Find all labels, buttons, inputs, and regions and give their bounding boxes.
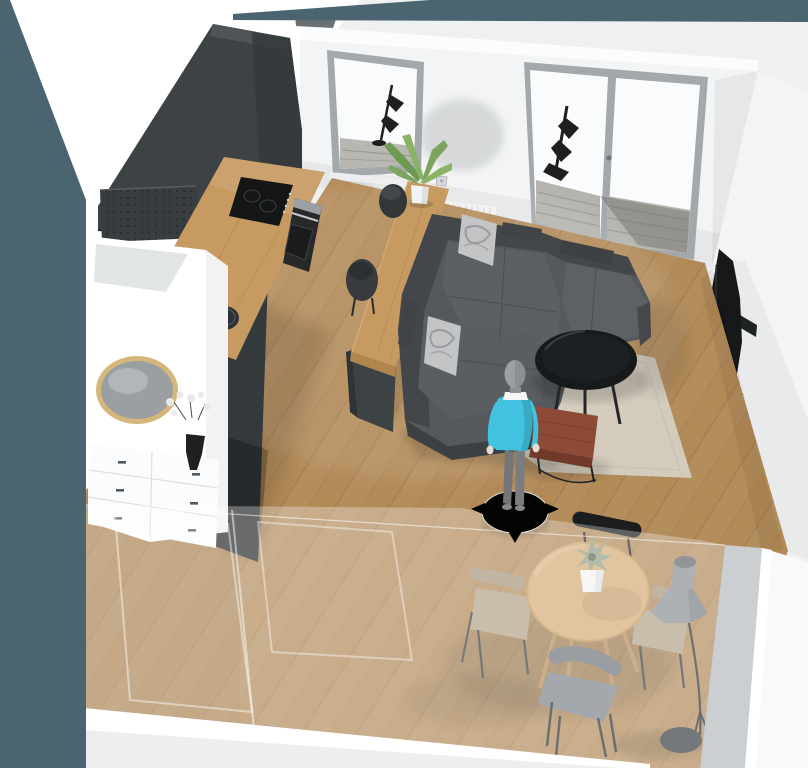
viewport-3d[interactable] — [0, 0, 808, 768]
cooktop-control — [285, 205, 287, 207]
bar-stool-seat — [349, 262, 373, 280]
flower — [171, 410, 177, 416]
drawer-handle — [192, 473, 200, 476]
avatar-foot — [515, 505, 525, 511]
door-handle — [607, 156, 612, 161]
move-disc[interactable] — [482, 491, 548, 533]
avatar-collar — [503, 392, 528, 400]
drawer-handle — [190, 502, 198, 505]
flower — [166, 398, 174, 406]
cooktop-control — [289, 193, 291, 195]
flower — [204, 404, 211, 411]
round-mirror[interactable] — [96, 356, 178, 424]
cooktop-control — [283, 211, 285, 213]
mirror-highlight — [108, 368, 148, 394]
partition-wardrobe[interactable] — [88, 236, 228, 548]
drawer-handle — [118, 461, 126, 464]
flower — [177, 392, 184, 399]
avatar-hand — [487, 446, 494, 455]
flower — [198, 392, 204, 398]
flower — [187, 394, 195, 402]
cooktop-control — [287, 199, 289, 201]
avatar-leg — [515, 450, 525, 505]
planner-stage[interactable] — [0, 0, 808, 768]
avatar-hand — [533, 444, 540, 453]
bar-stool-top — [381, 186, 401, 200]
avatar-foot — [502, 504, 512, 510]
drawer-handle — [116, 489, 124, 492]
